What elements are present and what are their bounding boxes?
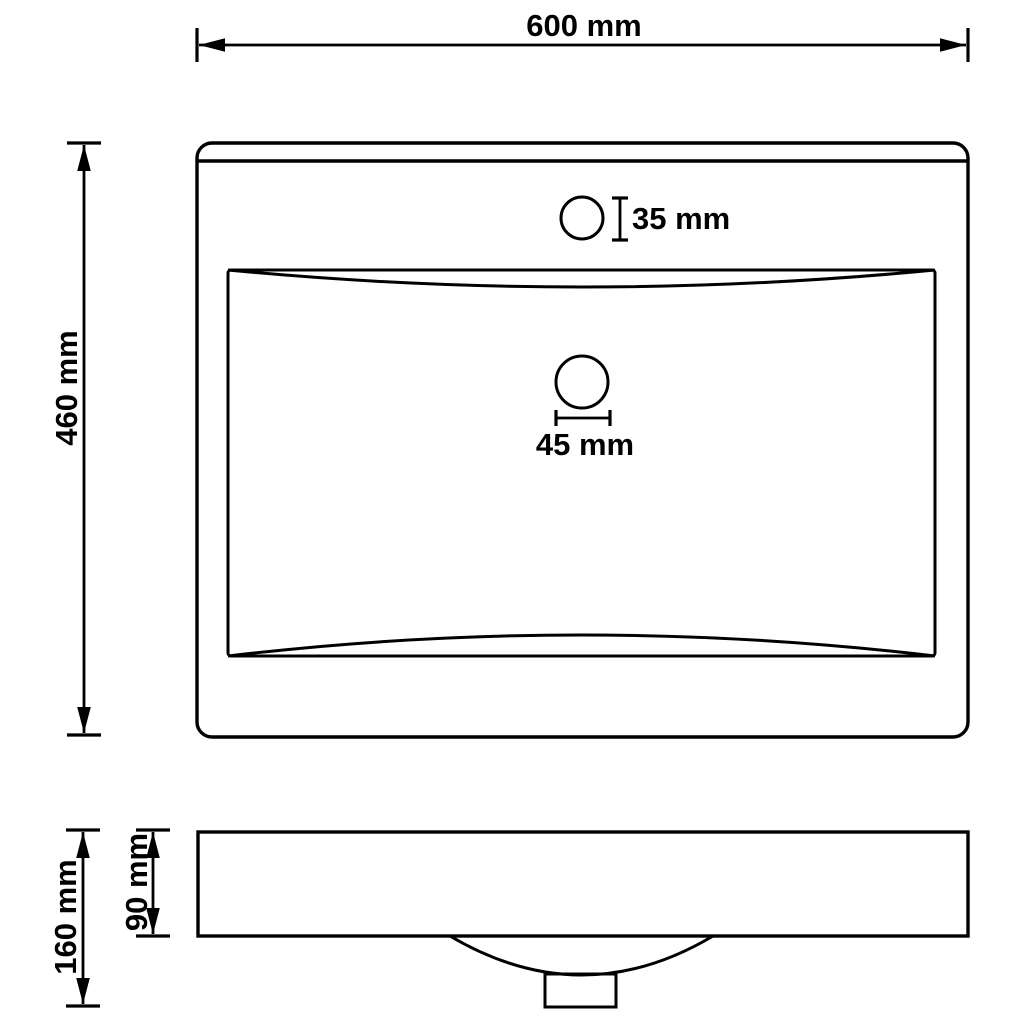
plan-basin-bottom-curve (228, 635, 935, 656)
drain-hole (556, 356, 608, 408)
technical-drawing-svg: 600 mm 460 mm 35 mm 45 mm (0, 0, 1024, 1024)
faucet-hole-group: 35 mm (561, 197, 730, 240)
dimension-overall-depth: 460 mm (49, 143, 101, 735)
arrowhead-down-icon (76, 978, 90, 1004)
plan-basin-top-curve (228, 270, 935, 287)
arrowhead-left-icon (199, 38, 225, 52)
dim-label-drain-hole: 45 mm (536, 427, 634, 462)
side-bowl-underside-curve (450, 936, 713, 975)
arrowhead-right-icon (940, 38, 966, 52)
side-body (198, 832, 968, 936)
side-view (198, 832, 968, 1007)
dim-label-rim-height: 90 mm (119, 833, 154, 931)
arrowhead-up-icon (77, 145, 91, 171)
drain-hole-group: 45 mm (536, 356, 634, 462)
dim-label-overall-width: 600 mm (526, 8, 641, 43)
arrowhead-down-icon (77, 707, 91, 733)
dim-label-faucet-hole: 35 mm (632, 201, 730, 236)
dimension-overall-width: 600 mm (197, 8, 968, 62)
dimension-overall-height: 160 mm (48, 830, 100, 1006)
arrowhead-up-icon (76, 832, 90, 858)
plan-basin-opening (228, 270, 935, 656)
dimension-rim-height: 90 mm (119, 830, 170, 936)
faucet-hole (561, 197, 603, 239)
drawing-canvas: 600 mm 460 mm 35 mm 45 mm (0, 0, 1024, 1024)
dim-label-overall-depth: 460 mm (49, 330, 84, 445)
plan-view: 35 mm 45 mm (197, 143, 968, 737)
side-drain-stub (545, 974, 616, 1007)
dim-label-overall-height: 160 mm (48, 859, 83, 974)
